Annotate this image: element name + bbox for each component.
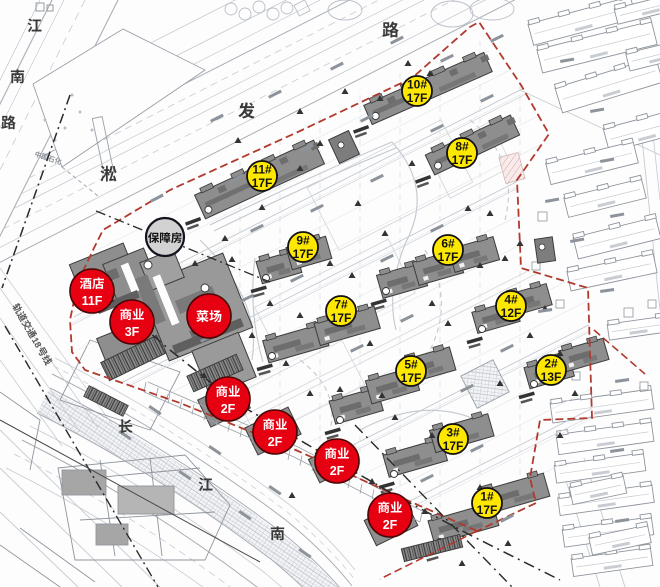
svg-text:13F: 13F [541, 370, 562, 384]
svg-text:8#: 8# [455, 140, 469, 154]
svg-text:2F: 2F [268, 435, 283, 449]
svg-text:2#: 2# [544, 357, 558, 371]
svg-text:9#: 9# [296, 234, 310, 248]
svg-text:2F: 2F [221, 402, 236, 416]
svg-text:1#: 1# [480, 490, 494, 504]
svg-text:2F: 2F [330, 464, 345, 478]
svg-text:17F: 17F [477, 503, 498, 517]
svg-text:11F: 11F [82, 294, 103, 308]
svg-text:3F: 3F [125, 325, 140, 339]
svg-text:2F: 2F [383, 518, 398, 532]
svg-text:10#: 10# [407, 78, 427, 92]
svg-text:17F: 17F [252, 176, 273, 190]
svg-text:17F: 17F [293, 247, 314, 261]
svg-text:4#: 4# [504, 293, 518, 307]
svg-text:17F: 17F [331, 311, 352, 325]
svg-text:17F: 17F [407, 91, 428, 105]
svg-text:17F: 17F [401, 371, 422, 385]
svg-text:7#: 7# [334, 298, 348, 312]
svg-text:12F: 12F [501, 306, 522, 320]
svg-text:17F: 17F [438, 250, 459, 264]
svg-text:3#: 3# [446, 426, 460, 440]
svg-text:11#: 11# [252, 163, 272, 177]
svg-text:17F: 17F [443, 439, 464, 453]
svg-text:17F: 17F [452, 153, 473, 167]
svg-text:5#: 5# [404, 358, 418, 372]
svg-text:6#: 6# [441, 237, 455, 251]
